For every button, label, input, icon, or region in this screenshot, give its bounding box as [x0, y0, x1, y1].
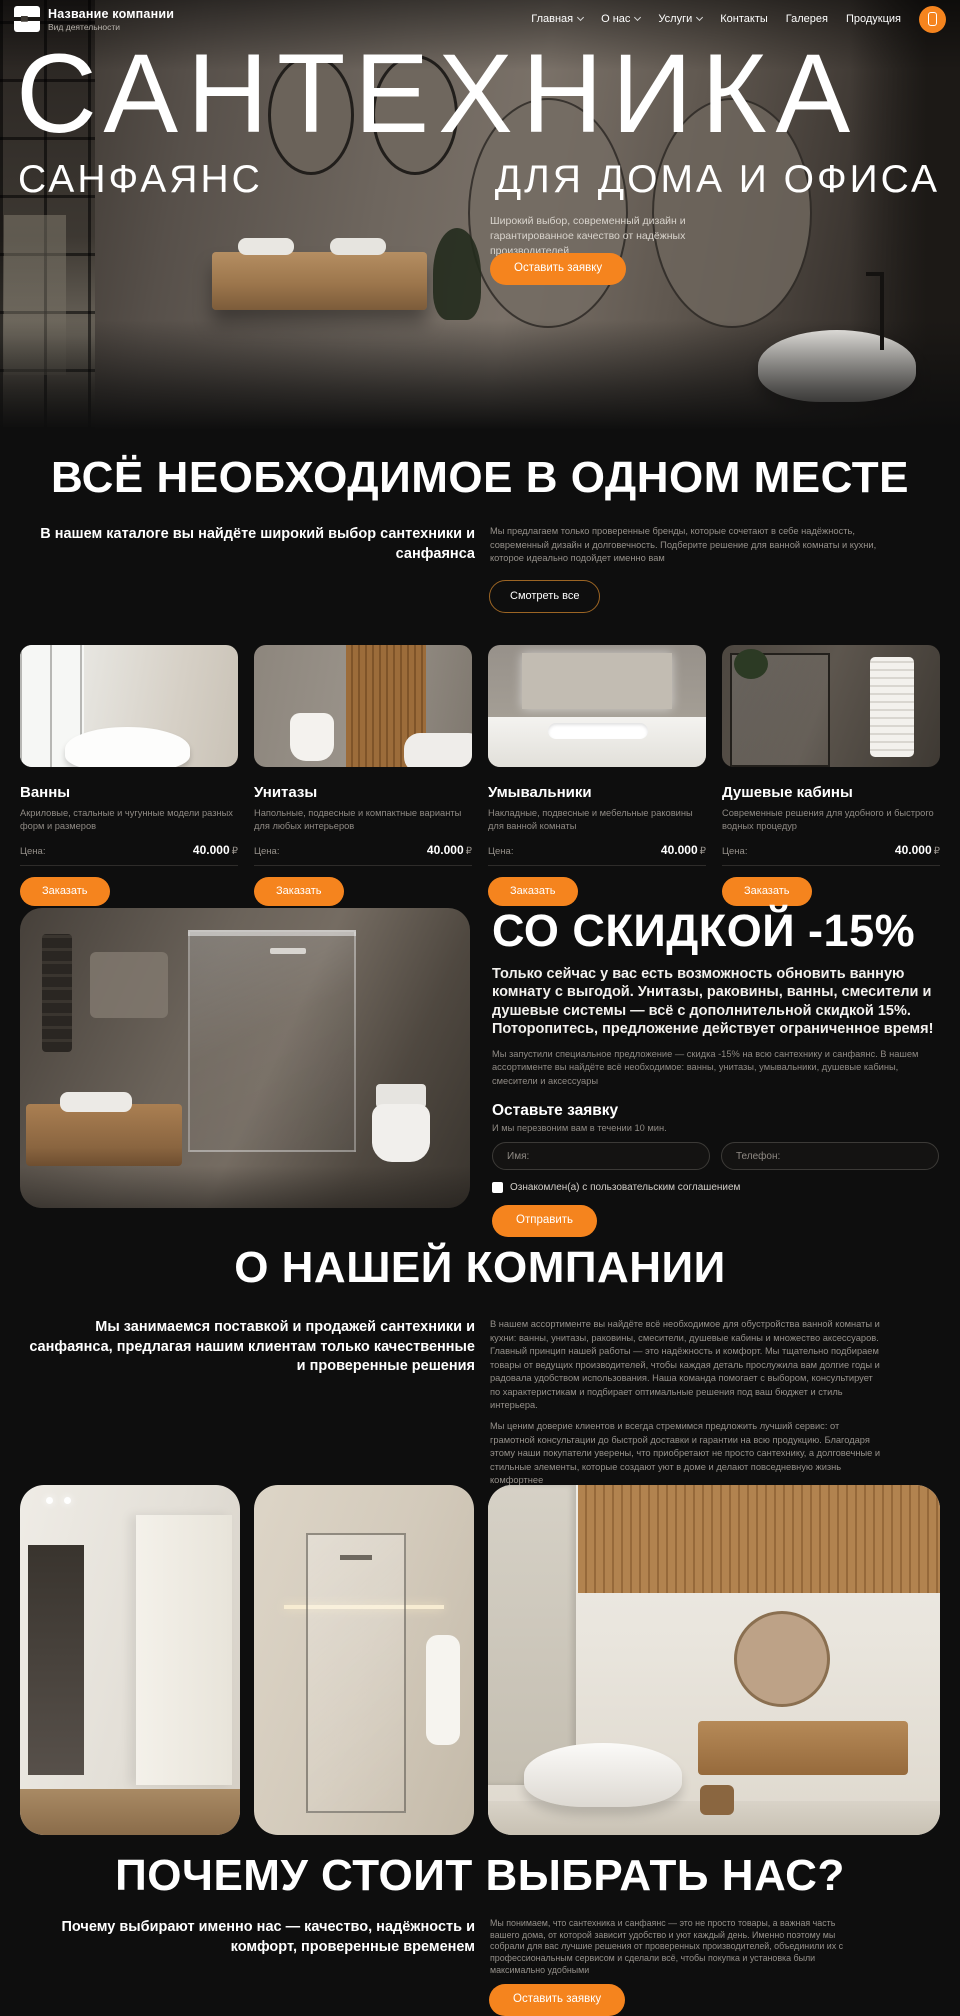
radiator-shape	[870, 657, 914, 757]
plant-shape	[734, 649, 768, 679]
product-card-toilets: Унитазы Напольные, подвесные и компактны…	[254, 645, 472, 906]
catalog-lead: В нашем каталоге вы найдёте широкий выбо…	[20, 525, 475, 565]
mirror-shape	[28, 1545, 84, 1775]
phone-icon	[928, 12, 937, 26]
product-description: Накладные, подвесные и мебельные раковин…	[488, 807, 706, 833]
window-shape	[488, 1485, 576, 1785]
form-title: Оставьте заявку	[492, 1102, 940, 1120]
bathtub-shape	[524, 1743, 682, 1807]
product-card-showers: Душевые кабины Современные решения для у…	[722, 645, 940, 906]
shower-frame-shape	[188, 930, 356, 936]
product-image-washbasins	[488, 645, 706, 767]
product-name: Душевые кабины	[722, 784, 940, 801]
price-label: Цена:	[488, 846, 513, 857]
hero-cta-button[interactable]: Оставить заявку	[490, 253, 626, 285]
currency-sign: ₽	[466, 846, 472, 857]
hero-vanity-shape	[212, 252, 427, 310]
order-button[interactable]: Заказать	[722, 877, 812, 906]
product-card-washbasins: Умывальники Накладные, подвесные и мебел…	[488, 645, 706, 906]
hero-plant-shape	[433, 228, 481, 320]
company-name: Название компании	[48, 7, 174, 21]
stool-shape	[700, 1785, 734, 1815]
currency-sign: ₽	[934, 846, 940, 857]
gallery-photo-3	[488, 1485, 940, 1835]
price-row: Цена: 40.000₽	[488, 843, 706, 866]
price-row: Цена: 40.000₽	[254, 843, 472, 866]
bathrobe-shape	[426, 1635, 460, 1745]
form-subtitle: И мы перезвоним вам в течении 10 мин.	[492, 1123, 940, 1133]
name-input[interactable]	[492, 1142, 710, 1170]
phone-input[interactable]	[721, 1142, 939, 1170]
about-paragraph: Мы ценим доверие клиентов и всегда стрем…	[490, 1420, 882, 1487]
mirror-shape	[90, 952, 168, 1018]
hero-sink-shape	[330, 238, 386, 255]
floor-shade-shape	[20, 1166, 470, 1208]
bathtub-shape	[65, 727, 190, 767]
price-row: Цена: 40.000₽	[20, 843, 238, 866]
why-lead: Почему выбирают именно нас — качество, н…	[20, 1918, 475, 1976]
why-title: ПОЧЕМУ СТОИТ ВЫБРАТЬ НАС?	[0, 1853, 960, 1899]
floor-shape	[20, 1789, 240, 1835]
product-description: Напольные, подвесные и компактные вариан…	[254, 807, 472, 833]
price-label: Цена:	[254, 846, 279, 857]
product-image-bathtubs	[20, 645, 238, 767]
product-image-toilets	[254, 645, 472, 767]
round-mirror-shape	[734, 1611, 830, 1707]
hero-subtitle-left: САНФАЯНС	[18, 158, 263, 202]
consent-checkbox[interactable]	[492, 1182, 503, 1193]
nav-item-home[interactable]: Главная	[531, 13, 583, 25]
nav-label: Продукция	[846, 13, 901, 25]
product-card-bathtubs: Ванны Акриловые, стальные и чугунные мод…	[20, 645, 238, 906]
hero-sink-shape	[238, 238, 294, 255]
bathtub-shape	[404, 733, 472, 767]
site-header: Название компании Вид деятельности Главн…	[0, 0, 960, 38]
shower-head-shape	[340, 1555, 372, 1560]
nav-label: О нас	[601, 13, 630, 25]
nav-label: Контакты	[720, 13, 768, 25]
vanity-shape	[698, 1721, 908, 1775]
toilet-shape	[290, 713, 334, 761]
about-paragraph: В нашем ассортименте вы найдёте всё необ…	[490, 1318, 882, 1412]
gallery-photo-2	[254, 1485, 474, 1835]
catalog-title: ВСЁ НЕОБХОДИМОЕ В ОДНОМ МЕСТЕ	[0, 455, 960, 501]
discount-note: Мы запустили специальное предложение — с…	[492, 1048, 940, 1088]
nav-label: Главная	[531, 13, 573, 25]
nav-label: Галерея	[786, 13, 828, 25]
toilet-shape	[372, 1104, 430, 1162]
phone-button[interactable]	[919, 6, 946, 33]
order-button[interactable]: Заказать	[20, 877, 110, 906]
product-name: Ванны	[20, 784, 238, 801]
product-description: Современные решения для удобного и быстр…	[722, 807, 940, 833]
order-button[interactable]: Заказать	[488, 877, 578, 906]
nav-item-gallery[interactable]: Галерея	[786, 13, 828, 25]
catalog-section: ВСЁ НЕОБХОДИМОЕ В ОДНОМ МЕСТЕ В нашем ка…	[0, 430, 960, 908]
logo-icon	[14, 6, 40, 32]
chevron-down-icon	[696, 14, 703, 21]
gallery-photo-1	[20, 1485, 240, 1835]
nav-label: Услуги	[658, 13, 692, 25]
mirror-shape	[522, 653, 672, 709]
vanity-shape	[26, 1104, 182, 1166]
currency-sign: ₽	[700, 846, 706, 857]
about-title: О НАШЕЙ КОМПАНИИ	[0, 1245, 960, 1291]
why-description: Мы понимаем, что сантехника и санфаянс —…	[490, 1918, 866, 1976]
order-button[interactable]: Заказать	[254, 877, 344, 906]
product-cards: Ванны Акриловые, стальные и чугунные мод…	[0, 645, 960, 906]
chevron-down-icon	[577, 14, 584, 21]
spotlight-shape	[64, 1497, 71, 1504]
catalog-description: Мы предлагаем только проверенные бренды,…	[490, 525, 882, 565]
company-tagline: Вид деятельности	[48, 22, 174, 32]
price-value: 40.000₽	[427, 843, 472, 857]
about-section: О НАШЕЙ КОМПАНИИ Мы занимаемся поставкой…	[0, 1230, 960, 1485]
basin-shape	[548, 723, 648, 739]
why-section: ПОЧЕМУ СТОИТ ВЫБРАТЬ НАС? Почему выбираю…	[0, 1835, 960, 1982]
consent-label: Ознакомлен(а) с пользовательским соглаше…	[510, 1182, 740, 1193]
hero-bottom-fade	[0, 320, 960, 430]
product-image-showers	[722, 645, 940, 767]
discount-title: СО СКИДКОЙ -15%	[492, 908, 940, 953]
hero-title: САНТЕХНИКА	[16, 38, 859, 150]
discount-section: СО СКИДКОЙ -15% Только сейчас у вас есть…	[0, 908, 960, 1230]
view-all-button[interactable]: Смотреть все	[489, 580, 600, 613]
price-row: Цена: 40.000₽	[722, 843, 940, 866]
price-value: 40.000₽	[895, 843, 940, 857]
gallery-section	[0, 1485, 960, 1835]
hero-subtitle-right: ДЛЯ ДОМА И ОФИСА	[495, 158, 940, 202]
nav-item-services[interactable]: Услуги	[658, 13, 702, 25]
shower-glass-shape	[306, 1533, 406, 1813]
hero-section: Название компании Вид деятельности Главн…	[0, 0, 960, 430]
sink-shape	[60, 1092, 132, 1112]
price-value: 40.000₽	[193, 843, 238, 857]
logo[interactable]: Название компании Вид деятельности	[14, 6, 174, 32]
wood-ceiling-shape	[578, 1485, 940, 1593]
nav-item-contacts[interactable]: Контакты	[720, 13, 768, 25]
price-label: Цена:	[722, 846, 747, 857]
discount-subtitle: Только сейчас у вас есть возможность обн…	[492, 965, 940, 1039]
product-description: Акриловые, стальные и чугунные модели ра…	[20, 807, 238, 833]
nav-item-products[interactable]: Продукция	[846, 13, 901, 25]
product-name: Умывальники	[488, 784, 706, 801]
price-label: Цена:	[20, 846, 45, 857]
cabinet-shape	[136, 1515, 232, 1785]
hero-faucet-shape	[866, 272, 884, 276]
product-name: Унитазы	[254, 784, 472, 801]
discount-photo	[20, 908, 470, 1208]
shower-head-shape	[270, 948, 306, 954]
nav-item-about[interactable]: О нас	[601, 13, 640, 25]
chevron-down-icon	[634, 14, 641, 21]
radiator-shape	[42, 934, 72, 1052]
spotlight-shape	[46, 1497, 53, 1504]
main-nav: Главная О нас Услуги Контакты Галерея Пр…	[531, 6, 946, 33]
price-value: 40.000₽	[661, 843, 706, 857]
shower-glass-shape	[188, 930, 356, 1152]
currency-sign: ₽	[232, 846, 238, 857]
